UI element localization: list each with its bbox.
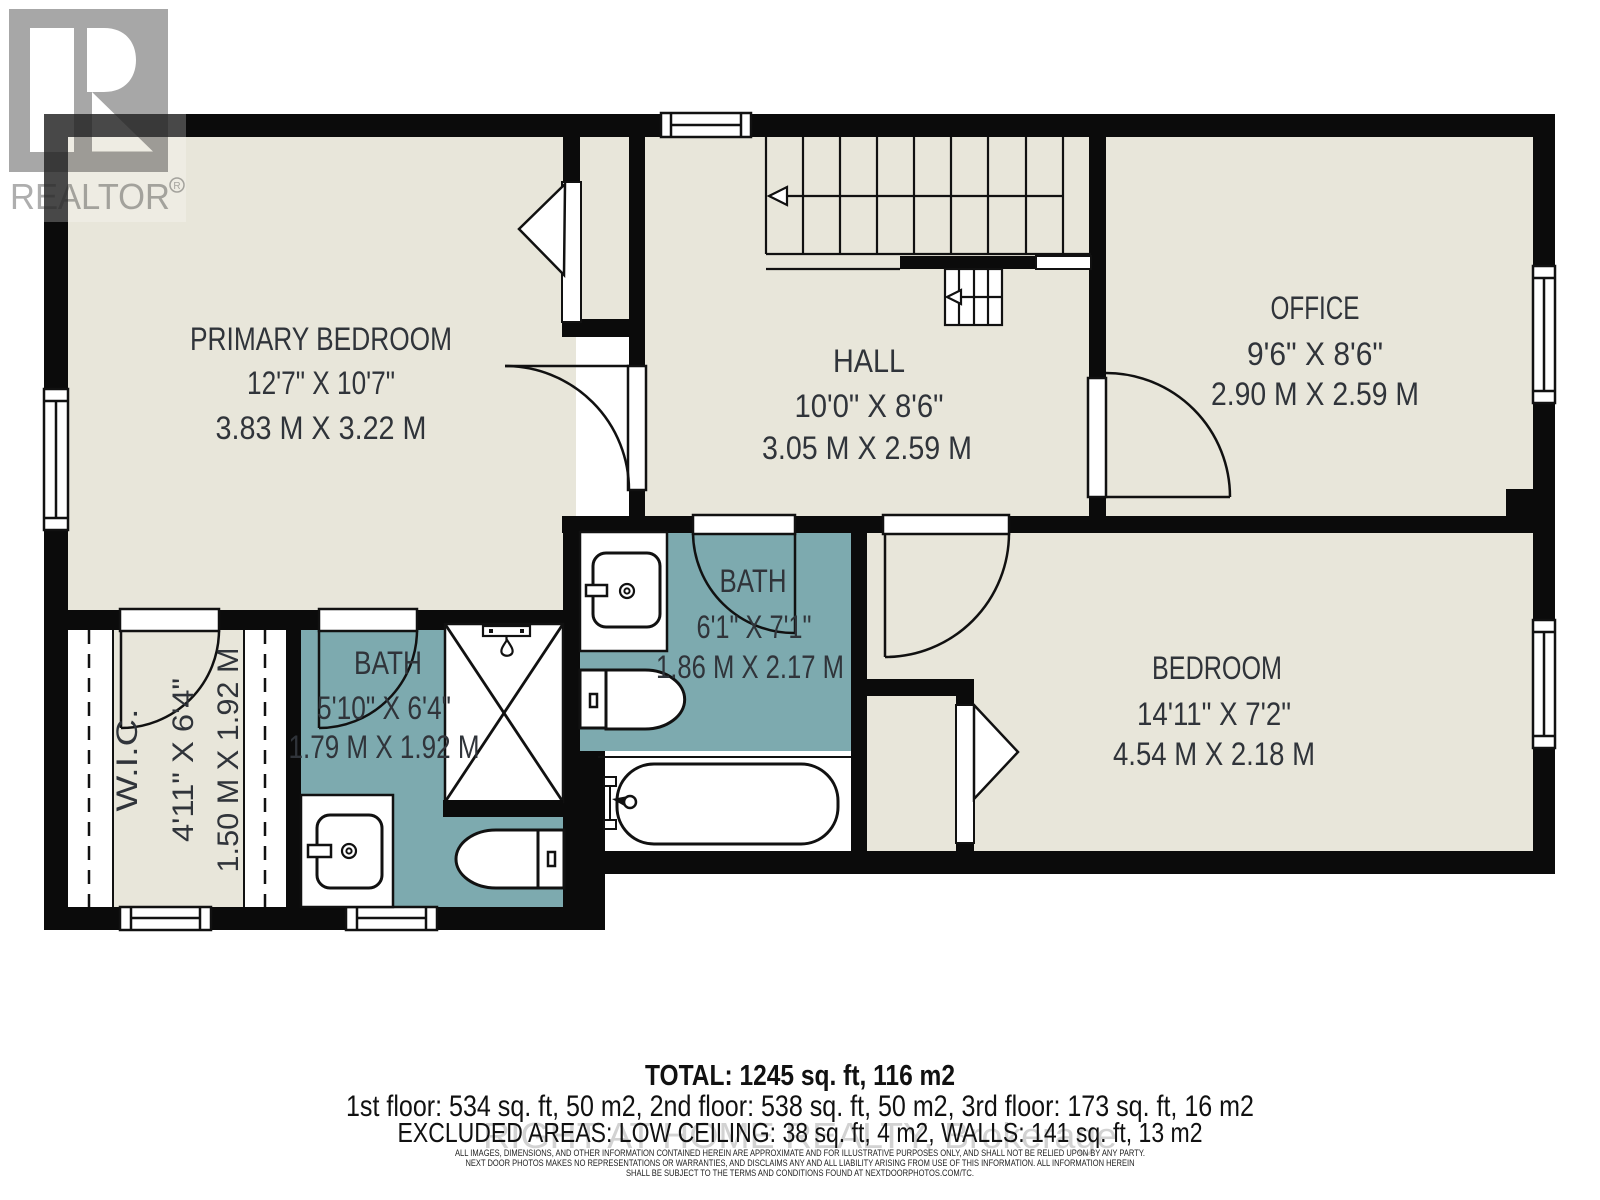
svg-text:REALTOR: REALTOR xyxy=(10,176,170,217)
svg-text:ALL IMAGES, DIMENSIONS, AND OT: ALL IMAGES, DIMENSIONS, AND OTHER INFORM… xyxy=(455,1148,1145,1158)
svg-text:EXCLUDED AREAS: LOW CEILING: 3: EXCLUDED AREAS: LOW CEILING: 38 sq. ft, … xyxy=(398,1117,1203,1148)
svg-text:3.05 M X 2.59 M: 3.05 M X 2.59 M xyxy=(762,430,972,466)
svg-text:SHALL BE SUBJECT TO THE TERMS: SHALL BE SUBJECT TO THE TERMS AND CONDIT… xyxy=(626,1168,974,1178)
svg-text:HALL: HALL xyxy=(833,343,905,379)
svg-text:NEXT DOOR PHOTOS MAKES NO REPR: NEXT DOOR PHOTOS MAKES NO REPRESENTATION… xyxy=(466,1158,1135,1168)
svg-text:5'10" X 6'4": 5'10" X 6'4" xyxy=(317,690,451,726)
svg-text:BATH: BATH xyxy=(354,645,422,681)
svg-text:10'0" X 8'6": 10'0" X 8'6" xyxy=(795,388,944,424)
svg-text:12'7" X 10'7": 12'7" X 10'7" xyxy=(247,365,395,401)
svg-text:1.79 M X 1.92 M: 1.79 M X 1.92 M xyxy=(289,729,480,765)
svg-text:W.I.C.: W.I.C. xyxy=(111,709,144,812)
svg-text:2.90 M X 2.59 M: 2.90 M X 2.59 M xyxy=(1211,376,1419,412)
svg-text:4.54 M X 2.18 M: 4.54 M X 2.18 M xyxy=(1113,736,1315,772)
svg-text:14'11" X 7'2": 14'11" X 7'2" xyxy=(1137,696,1291,732)
svg-text:BEDROOM: BEDROOM xyxy=(1152,650,1282,686)
svg-text:TOTAL: 1245 sq. ft, 116 m2: TOTAL: 1245 sq. ft, 116 m2 xyxy=(645,1060,955,1092)
svg-text:4'11" X 6'4": 4'11" X 6'4" xyxy=(167,678,200,842)
svg-text:R: R xyxy=(173,181,180,192)
svg-text:PRIMARY BEDROOM: PRIMARY BEDROOM xyxy=(190,321,452,357)
svg-text:6'1" X 7'1": 6'1" X 7'1" xyxy=(697,609,812,645)
svg-text:1.50 M X 1.92 M: 1.50 M X 1.92 M xyxy=(212,648,245,873)
svg-text:OFFICE: OFFICE xyxy=(1271,290,1360,326)
svg-text:3.83 M X 3.22 M: 3.83 M X 3.22 M xyxy=(216,410,427,446)
svg-text:9'6" X 8'6": 9'6" X 8'6" xyxy=(1247,336,1383,372)
svg-text:1.86 M X 2.17 M: 1.86 M X 2.17 M xyxy=(656,649,844,685)
svg-text:BATH: BATH xyxy=(720,563,787,599)
